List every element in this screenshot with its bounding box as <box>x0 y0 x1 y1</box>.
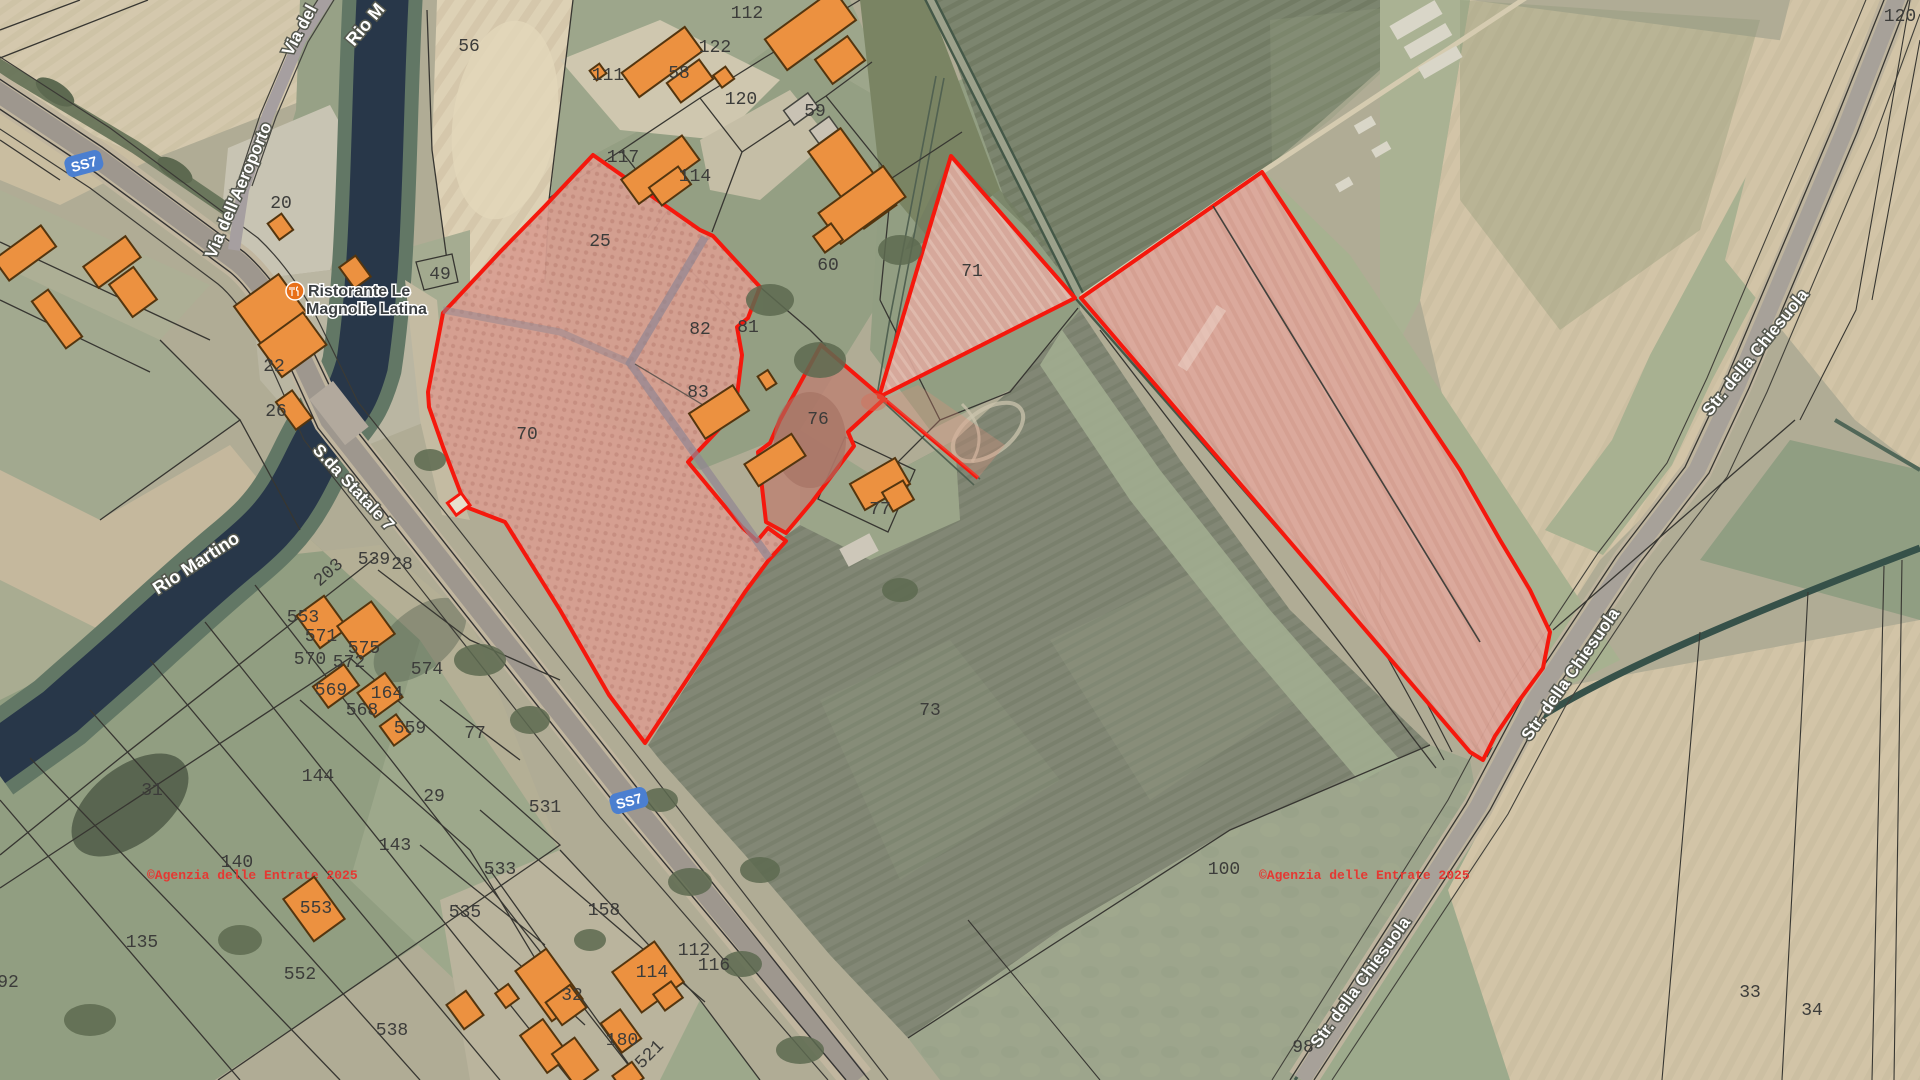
svg-text:553: 553 <box>287 608 319 628</box>
svg-text:59: 59 <box>804 102 826 122</box>
svg-text:77: 77 <box>869 500 891 520</box>
svg-text:117: 117 <box>607 148 639 168</box>
svg-text:31: 31 <box>141 781 163 801</box>
svg-text:81: 81 <box>737 318 759 338</box>
svg-text:559: 559 <box>394 719 426 739</box>
svg-text:Ristorante Le: Ristorante Le <box>308 283 410 300</box>
svg-text:60: 60 <box>817 256 839 276</box>
svg-text:135: 135 <box>126 933 158 953</box>
svg-text:571: 571 <box>305 627 337 647</box>
svg-text:553: 553 <box>300 899 332 919</box>
svg-text:26: 26 <box>265 402 287 422</box>
svg-text:140: 140 <box>221 853 253 873</box>
svg-text:71: 71 <box>961 262 983 282</box>
svg-text:82: 82 <box>689 320 711 340</box>
svg-text:92: 92 <box>0 973 19 993</box>
svg-text:33: 33 <box>1739 983 1761 1003</box>
svg-text:73: 73 <box>919 701 941 721</box>
svg-text:56: 56 <box>458 37 480 57</box>
svg-text:122: 122 <box>699 38 731 58</box>
svg-text:120: 120 <box>725 90 757 110</box>
svg-text:Magnolie Latina: Magnolie Latina <box>306 301 427 318</box>
svg-text:34: 34 <box>1801 1001 1823 1021</box>
svg-text:114: 114 <box>636 963 668 983</box>
svg-text:25: 25 <box>589 232 611 252</box>
svg-text:114: 114 <box>679 167 711 187</box>
svg-text:49: 49 <box>429 265 451 285</box>
svg-text:120: 120 <box>1884 7 1916 27</box>
svg-text:569: 569 <box>315 681 347 701</box>
svg-text:77: 77 <box>464 724 486 744</box>
svg-text:570: 570 <box>294 650 326 670</box>
svg-text:20: 20 <box>270 194 292 214</box>
svg-text:116: 116 <box>698 956 730 976</box>
svg-text:111: 111 <box>592 66 624 86</box>
svg-text:568: 568 <box>346 701 378 721</box>
svg-text:143: 143 <box>379 836 411 856</box>
svg-text:29: 29 <box>423 787 445 807</box>
svg-text:533: 533 <box>484 860 516 880</box>
svg-text:538: 538 <box>376 1021 408 1041</box>
svg-text:552: 552 <box>284 965 316 985</box>
svg-text:32: 32 <box>561 986 583 1006</box>
svg-text:572: 572 <box>333 653 365 673</box>
svg-text:574: 574 <box>411 660 443 680</box>
svg-text:144: 144 <box>302 767 334 787</box>
svg-text:28: 28 <box>391 555 413 575</box>
svg-text:112: 112 <box>731 4 763 24</box>
svg-text:100: 100 <box>1208 860 1240 880</box>
svg-text:76: 76 <box>807 410 829 430</box>
svg-text:70: 70 <box>516 425 538 445</box>
svg-text:158: 158 <box>588 901 620 921</box>
svg-text:22: 22 <box>263 357 285 377</box>
svg-text:535: 535 <box>449 903 481 923</box>
svg-text:539: 539 <box>358 550 390 570</box>
svg-text:83: 83 <box>687 383 709 403</box>
svg-text:58: 58 <box>668 64 690 84</box>
svg-text:531: 531 <box>529 798 561 818</box>
svg-text:180: 180 <box>606 1031 638 1051</box>
